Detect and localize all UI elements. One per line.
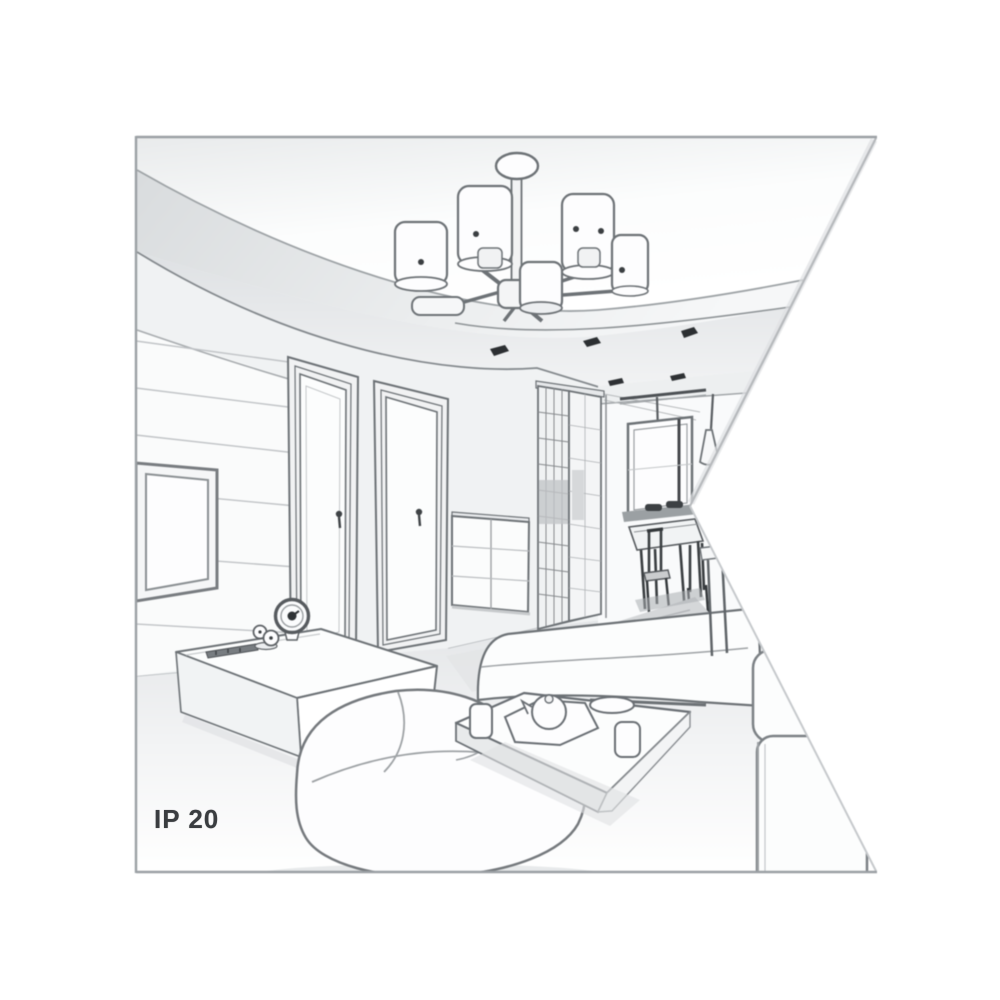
chest-of-drawers xyxy=(452,512,530,614)
product-illustration: IP 20 xyxy=(0,0,1000,1000)
wardrobe xyxy=(536,381,604,629)
room-line-drawing xyxy=(0,0,1000,1000)
right-sofa xyxy=(753,650,867,886)
wall-tv xyxy=(136,463,217,601)
door-right xyxy=(374,381,448,652)
ip-rating-label: IP 20 xyxy=(154,804,219,835)
